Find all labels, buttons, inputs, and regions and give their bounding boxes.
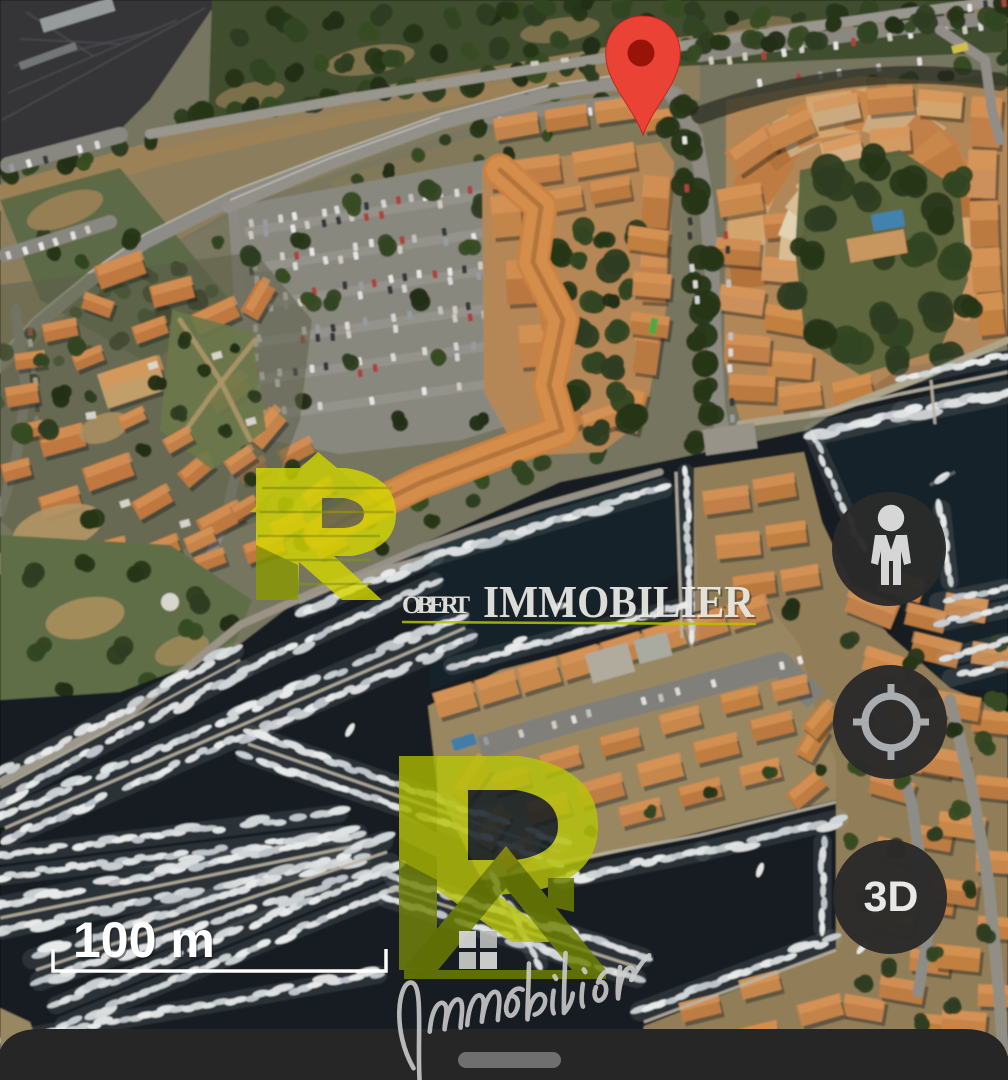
svg-text:OBERT: OBERT xyxy=(402,592,470,619)
svg-text:IMMOBILIER: IMMOBILIER xyxy=(483,576,755,627)
svg-text:3D: 3D xyxy=(864,873,919,921)
svg-text:100 m: 100 m xyxy=(73,912,215,968)
